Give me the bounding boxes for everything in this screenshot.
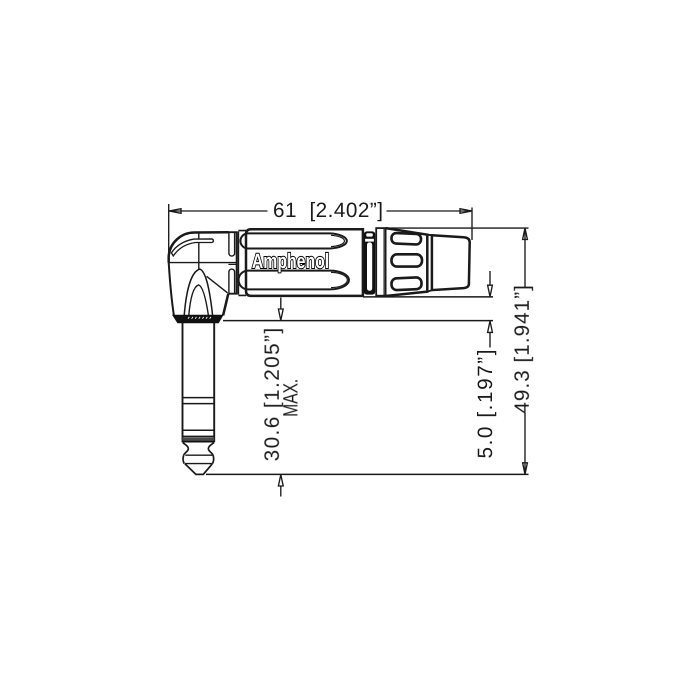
svg-text:MAX.: MAX. bbox=[280, 379, 303, 417]
svg-text:49.3 [1.941”]: 49.3 [1.941”] bbox=[511, 285, 534, 414]
svg-text:Amphenol: Amphenol bbox=[252, 250, 329, 273]
svg-text:61 [2.402”]: 61 [2.402”] bbox=[273, 199, 383, 222]
